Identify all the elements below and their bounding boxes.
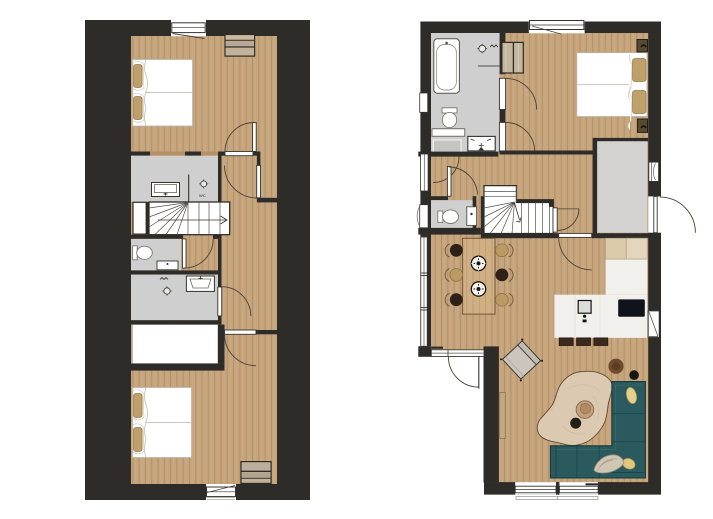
svg-text:WC: WC <box>199 193 206 198</box>
